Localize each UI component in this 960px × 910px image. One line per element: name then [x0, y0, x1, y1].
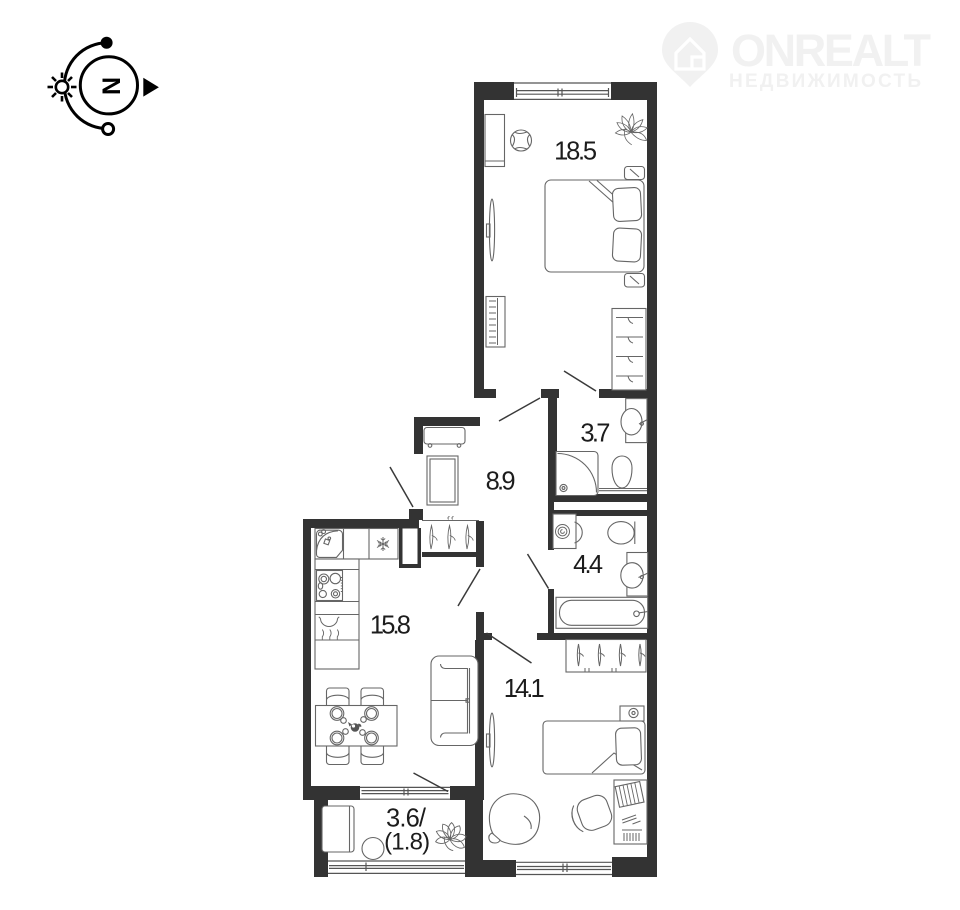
- svg-text:3.7: 3.7: [580, 420, 610, 448]
- svg-text:15.8: 15.8: [370, 612, 411, 640]
- svg-text:4.4: 4.4: [573, 551, 603, 579]
- svg-text:18.5: 18.5: [554, 138, 597, 166]
- svg-text:14.1: 14.1: [504, 675, 545, 703]
- svg-text:ONREALT: ONREALT: [731, 25, 931, 76]
- svg-text:N: N: [96, 77, 124, 95]
- svg-text:8.9: 8.9: [486, 468, 516, 496]
- svg-text:(1.8): (1.8): [384, 829, 430, 856]
